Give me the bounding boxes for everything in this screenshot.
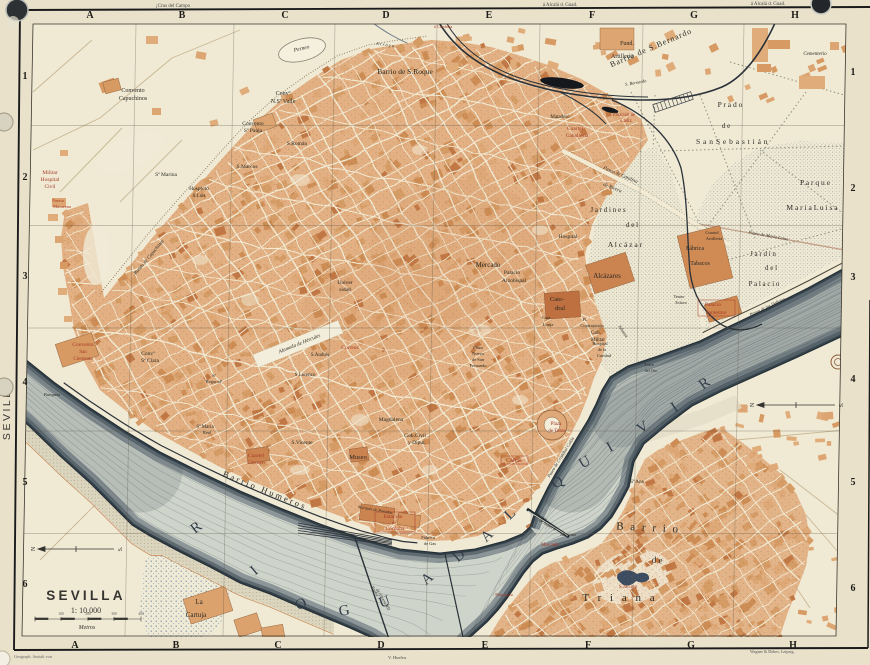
svg-text:Barqueta: Barqueta xyxy=(44,392,60,397)
svg-text:Univer: Univer xyxy=(337,280,352,286)
svg-text:Sª Ana: Sª Ana xyxy=(630,479,644,485)
svg-text:Macarena: Macarena xyxy=(53,204,71,209)
svg-text:Arzobispal: Arzobispal xyxy=(502,278,527,284)
svg-text:2: 2 xyxy=(851,183,856,194)
svg-text:M a r i a L u i s a: M a r i a L u i s a xyxy=(786,203,838,212)
svg-text:Cuartel: Cuartel xyxy=(705,230,719,235)
svg-text:5: 5 xyxy=(23,477,28,488)
svg-text:Real: Real xyxy=(203,430,212,435)
svg-text:Córdoba: Córdoba xyxy=(386,526,406,532)
svg-text:Nueva: Nueva xyxy=(472,351,484,356)
svg-text:Metros: Metros xyxy=(78,625,96,631)
svg-text:Matadero: Matadero xyxy=(550,115,570,120)
svg-text:de: de xyxy=(392,520,396,525)
svg-text:Mercado: Mercado xyxy=(541,543,559,548)
svg-text:Fábrica: Fábrica xyxy=(421,535,435,540)
svg-text:E: E xyxy=(486,10,493,21)
svg-text:La: La xyxy=(195,598,203,606)
svg-text:Correos: Correos xyxy=(341,345,358,351)
svg-text:N: N xyxy=(31,546,37,551)
svg-text:D: D xyxy=(382,10,389,21)
svg-text:Cuartel: Cuartel xyxy=(248,453,265,459)
svg-text:S a n S e b a s t i á n: S a n S e b a s t i á n xyxy=(696,137,768,146)
svg-text:Casa: Casa xyxy=(542,315,551,320)
svg-text:Hospital: Hospital xyxy=(559,234,578,240)
svg-text:Cementerio: Cementerio xyxy=(803,52,827,57)
svg-text:Pl.: Pl. xyxy=(583,317,588,322)
svg-text:Cádiz: Cádiz xyxy=(620,119,631,124)
svg-text:A: A xyxy=(71,640,79,651)
svg-text:Convento: Convento xyxy=(242,121,264,127)
svg-text:Plaza: Plaza xyxy=(551,422,563,427)
svg-text:5: 5 xyxy=(851,477,856,488)
svg-text:J a r d í n: J a r d í n xyxy=(750,250,776,258)
svg-text:200: 200 xyxy=(85,612,91,616)
svg-text:Capuchinos: Capuchinos xyxy=(119,96,148,102)
svg-text:Geograph. Anstalt von: Geograph. Anstalt von xyxy=(14,654,53,659)
svg-text:4: 4 xyxy=(851,374,856,385)
svg-text:Cuartel: Cuartel xyxy=(567,126,584,132)
svg-text:S.Román: S.Román xyxy=(287,141,308,147)
svg-text:San: San xyxy=(79,350,87,355)
svg-text:Santelmo: Santelmo xyxy=(706,310,727,316)
svg-text:Torre: Torre xyxy=(644,362,654,367)
svg-text:Puerta: Puerta xyxy=(52,198,64,203)
svg-text:Convº: Convº xyxy=(276,91,291,97)
svg-text:Hospital: Hospital xyxy=(592,341,608,346)
svg-text:S.: S. xyxy=(118,546,124,551)
svg-text:1: 1 xyxy=(851,67,856,78)
svg-text:S.Lorenzo: S.Lorenzo xyxy=(295,373,316,378)
svg-text:A: A xyxy=(86,10,94,21)
svg-text:400: 400 xyxy=(138,612,144,616)
svg-text:Militar: Militar xyxy=(42,170,57,176)
svg-text:Civil: Civil xyxy=(44,184,55,190)
svg-text:Convento: Convento xyxy=(121,88,144,94)
svg-text:Fund.: Fund. xyxy=(620,41,634,47)
svg-text:del Oro: del Oro xyxy=(645,368,658,373)
svg-text:Hospital: Hospital xyxy=(41,177,60,183)
svg-text:F: F xyxy=(589,10,595,21)
svg-text:Palacio: Palacio xyxy=(504,270,520,276)
svg-text:A l c á z a r: A l c á z a r xyxy=(608,240,643,249)
svg-text:sidad: sidad xyxy=(339,287,351,293)
svg-text:d e: d e xyxy=(651,555,663,566)
svg-text:P a l a c i o: P a l a c i o xyxy=(749,280,780,288)
svg-text:2: 2 xyxy=(23,172,28,183)
svg-text:de Gas: de Gas xyxy=(424,541,437,546)
svg-text:G: G xyxy=(687,640,695,651)
svg-text:d e l: d e l xyxy=(765,264,777,272)
svg-text:Cate-: Cate- xyxy=(550,296,564,303)
svg-text:Altozano: Altozano xyxy=(560,532,577,537)
svg-text:Clemente: Clemente xyxy=(73,357,93,362)
svg-text:Barrio de S.Roque: Barrio de S.Roque xyxy=(377,67,433,76)
svg-text:Eslava: Eslava xyxy=(675,300,686,305)
svg-text:300: 300 xyxy=(111,612,117,616)
svg-text:C: C xyxy=(281,10,288,21)
svg-text:Reguradª: Reguradª xyxy=(206,379,223,384)
svg-text:SEVILLA: SEVILLA xyxy=(46,588,125,603)
svg-text:S.Luis: S.Luis xyxy=(193,194,206,199)
svg-text:S.Marcos: S.Marcos xyxy=(237,164,258,170)
svg-text:Cárcel: Cárcel xyxy=(506,458,522,464)
svg-text:Tabacos: Tabacos xyxy=(690,261,710,267)
svg-text:S.Andrés: S.Andrés xyxy=(311,353,330,358)
svg-text:D: D xyxy=(377,640,384,651)
svg-text:100: 100 xyxy=(58,612,64,616)
svg-text:Fernando: Fernando xyxy=(470,363,488,368)
svg-text:P a r q u e: P a r q u e xyxy=(800,178,831,187)
svg-text:Convento: Convento xyxy=(72,342,94,348)
svg-text:Artillería: Artillería xyxy=(706,236,723,241)
svg-text:d e l: d e l xyxy=(626,221,638,229)
svg-text:á Alcalá d. Guad.: á Alcalá d. Guad. xyxy=(543,3,578,8)
svg-text:á Córdoba: á Córdoba xyxy=(434,24,453,29)
svg-text:S.Vicente: S.Vicente xyxy=(291,440,313,446)
svg-text:Gob.Civil: Gob.Civil xyxy=(404,433,426,439)
svg-text:Convº: Convº xyxy=(141,351,155,357)
svg-text:H: H xyxy=(791,10,799,21)
svg-text:Magdalena: Magdalena xyxy=(379,417,404,423)
svg-text:Contratación: Contratación xyxy=(580,323,604,328)
svg-text:B: B xyxy=(179,10,186,21)
svg-text:B: B xyxy=(173,640,180,651)
svg-text:Parroquia: Parroquia xyxy=(495,592,513,597)
svg-text:á Alcalá d. Guad.: á Alcalá d. Guad. xyxy=(751,2,786,7)
svg-text:P r a d o: P r a d o xyxy=(718,100,743,109)
svg-text:Teatro: Teatro xyxy=(674,294,685,299)
svg-text:de la: de la xyxy=(598,347,606,352)
svg-text:Carmen: Carmen xyxy=(247,460,265,466)
svg-text:N: N xyxy=(750,402,756,407)
svg-text:Cartuja: Cartuja xyxy=(186,611,207,619)
svg-text:V. Huelva: V. Huelva xyxy=(388,655,406,660)
svg-text:6: 6 xyxy=(23,579,28,590)
svg-text:N.Sª Valle: N.Sª Valle xyxy=(271,99,296,105)
svg-text:dral: dral xyxy=(555,305,565,312)
svg-text:de Toros: de Toros xyxy=(548,429,565,434)
svg-text:3: 3 xyxy=(23,271,28,282)
svg-text:Museo: Museo xyxy=(349,454,367,461)
svg-text:de San: de San xyxy=(472,357,485,362)
svg-text:C: C xyxy=(274,640,281,651)
svg-text:d e: d e xyxy=(722,122,730,130)
svg-text:¡Crus del Campo: ¡Crus del Campo xyxy=(156,4,191,9)
svg-text:1: 1 xyxy=(23,71,28,82)
svg-text:Plaza: Plaza xyxy=(473,345,483,350)
svg-text:Caridad: Caridad xyxy=(597,353,612,358)
svg-text:Caballería: Caballería xyxy=(566,133,589,139)
svg-text:Hospicio: Hospicio xyxy=(189,186,209,192)
svg-text:G: G xyxy=(690,10,698,21)
svg-text:6: 6 xyxy=(851,583,856,594)
svg-text:T r i a n a: T r i a n a xyxy=(582,592,657,604)
svg-text:Gob.: Gob. xyxy=(591,331,601,336)
svg-text:J a r d i n e s: J a r d i n e s xyxy=(590,206,625,214)
svg-text:F: F xyxy=(585,640,591,651)
svg-text:y Diput.: y Diput. xyxy=(408,440,427,446)
svg-text:Artillería: Artillería xyxy=(611,54,633,60)
svg-text:Fábrica: Fábrica xyxy=(686,246,704,252)
svg-text:Sª Clara: Sª Clara xyxy=(141,358,159,364)
svg-text:Lonja: Lonja xyxy=(543,322,554,327)
svg-text:Mercado: Mercado xyxy=(476,261,501,269)
svg-text:Estación de: Estación de xyxy=(613,113,635,118)
svg-text:S.: S. xyxy=(839,402,845,407)
svg-text:Sª Marina: Sª Marina xyxy=(155,172,177,178)
svg-text:S.Jacinto: S.Jacinto xyxy=(619,585,638,590)
svg-text:3: 3 xyxy=(851,272,856,283)
svg-text:E: E xyxy=(482,640,489,651)
svg-text:4: 4 xyxy=(23,377,28,388)
svg-text:Alcázares: Alcázares xyxy=(593,272,621,280)
svg-text:Palacio: Palacio xyxy=(705,302,721,308)
svg-text:Sª Paula: Sª Paula xyxy=(244,128,263,134)
